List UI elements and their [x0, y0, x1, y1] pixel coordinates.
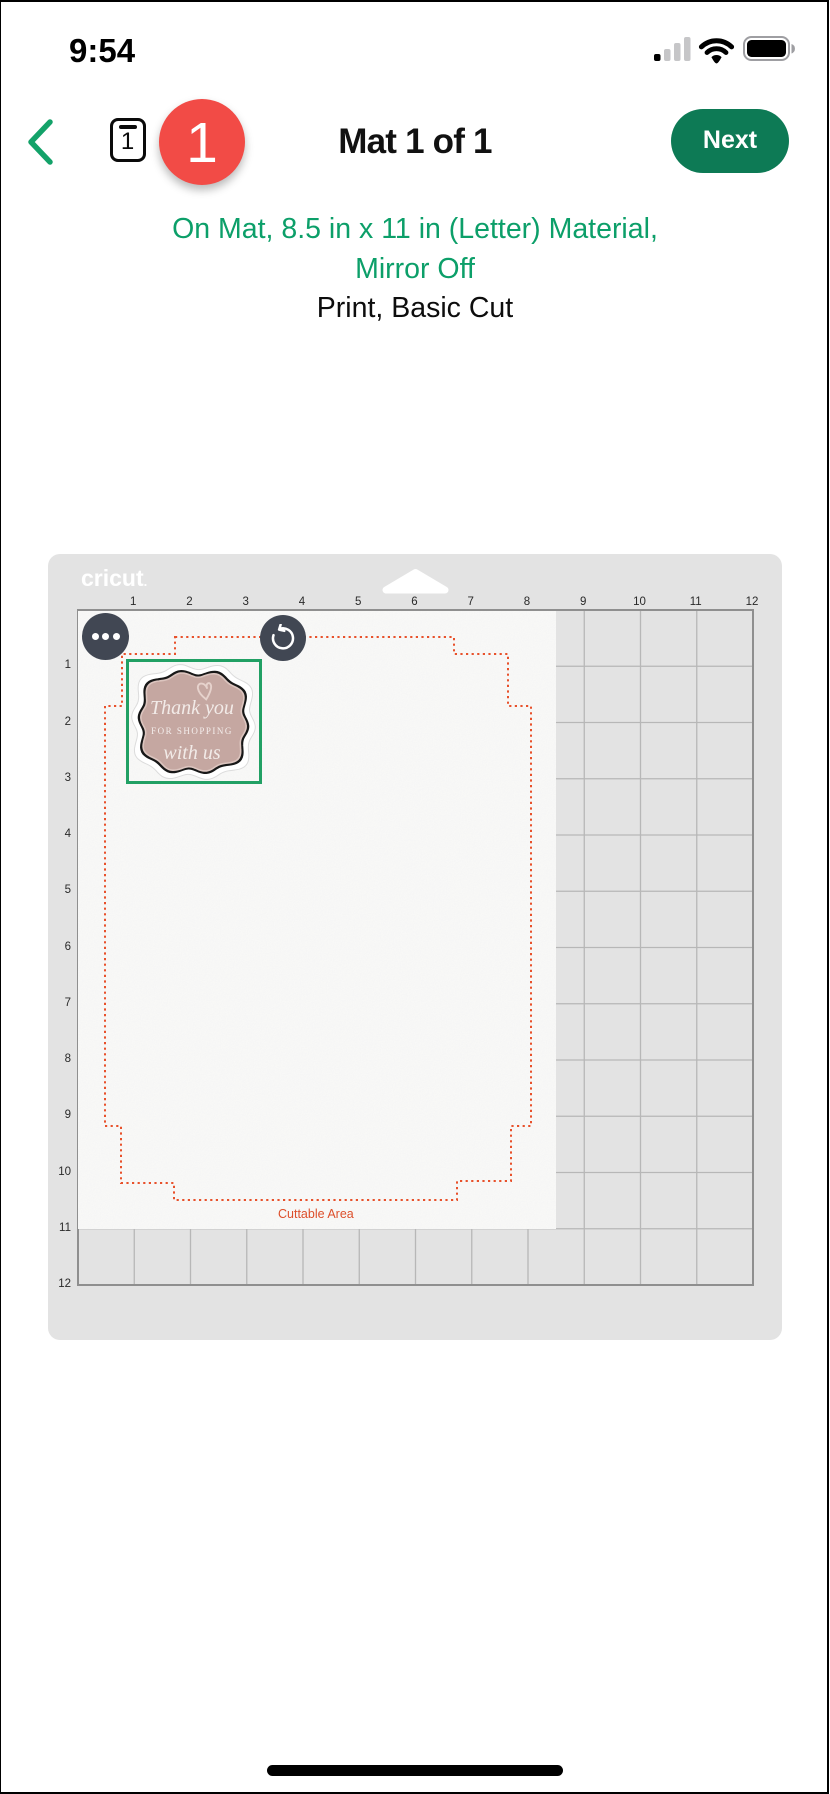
svg-text:with us: with us	[163, 742, 220, 764]
svg-text:Thank you: Thank you	[150, 697, 234, 719]
svg-text:FOR SHOPPING: FOR SHOPPING	[151, 726, 233, 736]
